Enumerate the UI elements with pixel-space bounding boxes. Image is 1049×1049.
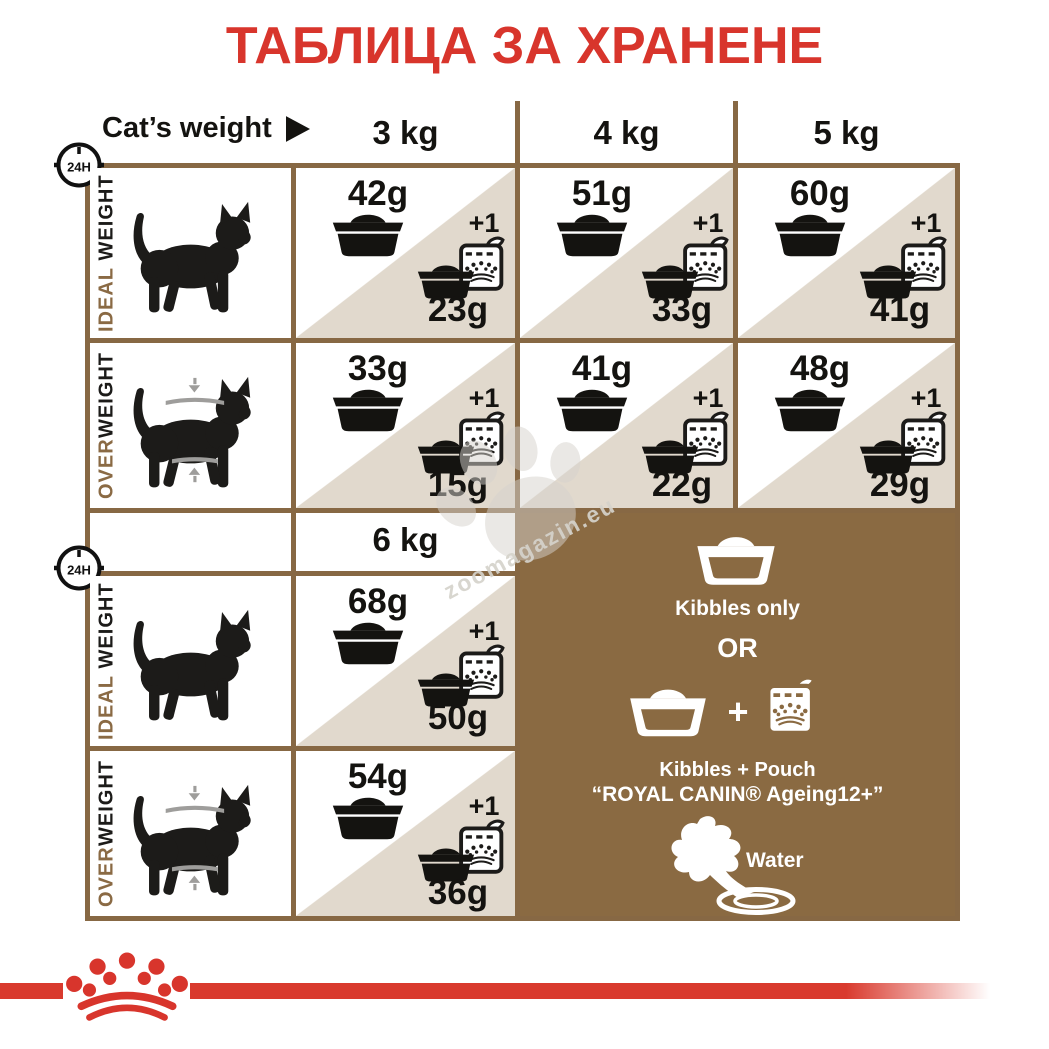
cats-weight-label: Cat’s weight <box>102 112 272 145</box>
plus-one-label: +1 <box>462 616 506 647</box>
cell-ideal-3kg: 42g +1 23g <box>296 168 515 338</box>
food-bowl-icon <box>552 383 632 433</box>
kibbles-only-label: Kibbles only <box>520 597 955 621</box>
24h-label: 24H <box>67 160 91 175</box>
plus-one-label: +1 <box>904 208 948 239</box>
cell-over-4kg: 41g +1 22g <box>520 343 733 508</box>
mixed-amount: 33g <box>610 290 754 330</box>
24h-label: 24H <box>67 563 91 578</box>
mixed-amount: 15g <box>386 465 530 505</box>
row-label-overweight: OVERWEIGHT <box>90 343 291 508</box>
ideal-weight-cat-icon <box>124 594 270 730</box>
cats-weight-header: Cat’s weight <box>102 112 310 145</box>
ideal-weight-cat-icon <box>124 186 270 322</box>
footer-red-band <box>0 983 63 999</box>
grid-line <box>955 163 960 921</box>
mixed-amount: 50g <box>386 698 530 738</box>
plus-one-label: +1 <box>686 208 730 239</box>
page-title: ТАБЛИЦА ЗА ХРАНЕНЕ <box>0 16 1049 76</box>
mixed-amount: 22g <box>610 465 754 505</box>
row-label-ideal-weight: IDEAL WEIGHT <box>90 576 291 746</box>
water-label: Water <box>746 849 804 873</box>
food-bowl-icon <box>770 383 850 433</box>
column-header-3kg: 3 kg <box>296 114 515 152</box>
food-bowl-icon <box>328 616 408 666</box>
cell-over-5kg: 48g +1 29g <box>738 343 955 508</box>
food-bowl-icon <box>552 208 632 258</box>
ideal-weight-label: IDEAL WEIGHT <box>93 168 121 338</box>
pouch-product-name: “ROYAL CANIN® Ageing12+” <box>520 783 955 807</box>
food-bowl-icon <box>328 383 408 433</box>
water-icon <box>648 813 833 918</box>
row-label-ideal-weight: IDEAL WEIGHT <box>90 168 291 338</box>
plus-one-label: +1 <box>462 383 506 414</box>
column-header-5kg: 5 kg <box>738 114 955 152</box>
plus-sign: + <box>716 691 760 733</box>
row-label-overweight: OVERWEIGHT <box>90 751 291 916</box>
food-bowl-icon <box>770 208 850 258</box>
footer-red-band <box>190 983 990 999</box>
overweight-label: OVERWEIGHT <box>93 343 121 508</box>
plus-one-label: +1 <box>462 208 506 239</box>
or-label: OR <box>520 633 955 664</box>
royal-canin-crown-logo <box>61 951 193 1027</box>
overweight-label: OVERWEIGHT <box>93 751 121 916</box>
cell-ideal-5kg: 60g +1 41g <box>738 168 955 338</box>
column-header-4kg: 4 kg <box>520 114 733 152</box>
cell-ideal-6kg: 68g +1 50g <box>296 576 515 746</box>
mixed-amount: 41g <box>828 290 972 330</box>
ideal-weight-label: IDEAL WEIGHT <box>93 576 121 746</box>
plus-one-label: +1 <box>462 791 506 822</box>
mixed-amount: 36g <box>386 873 530 913</box>
food-bowl-icon <box>690 531 782 587</box>
overweight-cat-icon <box>124 361 270 497</box>
kibbles-pouch-label: Kibbles + Pouch <box>520 759 955 782</box>
food-bowl-icon <box>623 683 713 739</box>
food-bowl-icon <box>328 208 408 258</box>
cell-ideal-4kg: 51g +1 33g <box>520 168 733 338</box>
food-bowl-icon <box>328 791 408 841</box>
column-header-6kg: 6 kg <box>296 521 515 559</box>
cell-over-3kg: 33g +1 15g <box>296 343 515 508</box>
cell-over-6kg: 54g +1 36g <box>296 751 515 916</box>
overweight-cat-icon <box>124 769 270 905</box>
feeding-options-panel: Kibbles only OR + Kibbles + Pouch “ROYAL… <box>520 513 955 916</box>
mixed-amount: 29g <box>828 465 972 505</box>
plus-one-label: +1 <box>904 383 948 414</box>
plus-one-label: +1 <box>686 383 730 414</box>
mixed-amount: 23g <box>386 290 530 330</box>
pouch-icon <box>765 675 817 737</box>
